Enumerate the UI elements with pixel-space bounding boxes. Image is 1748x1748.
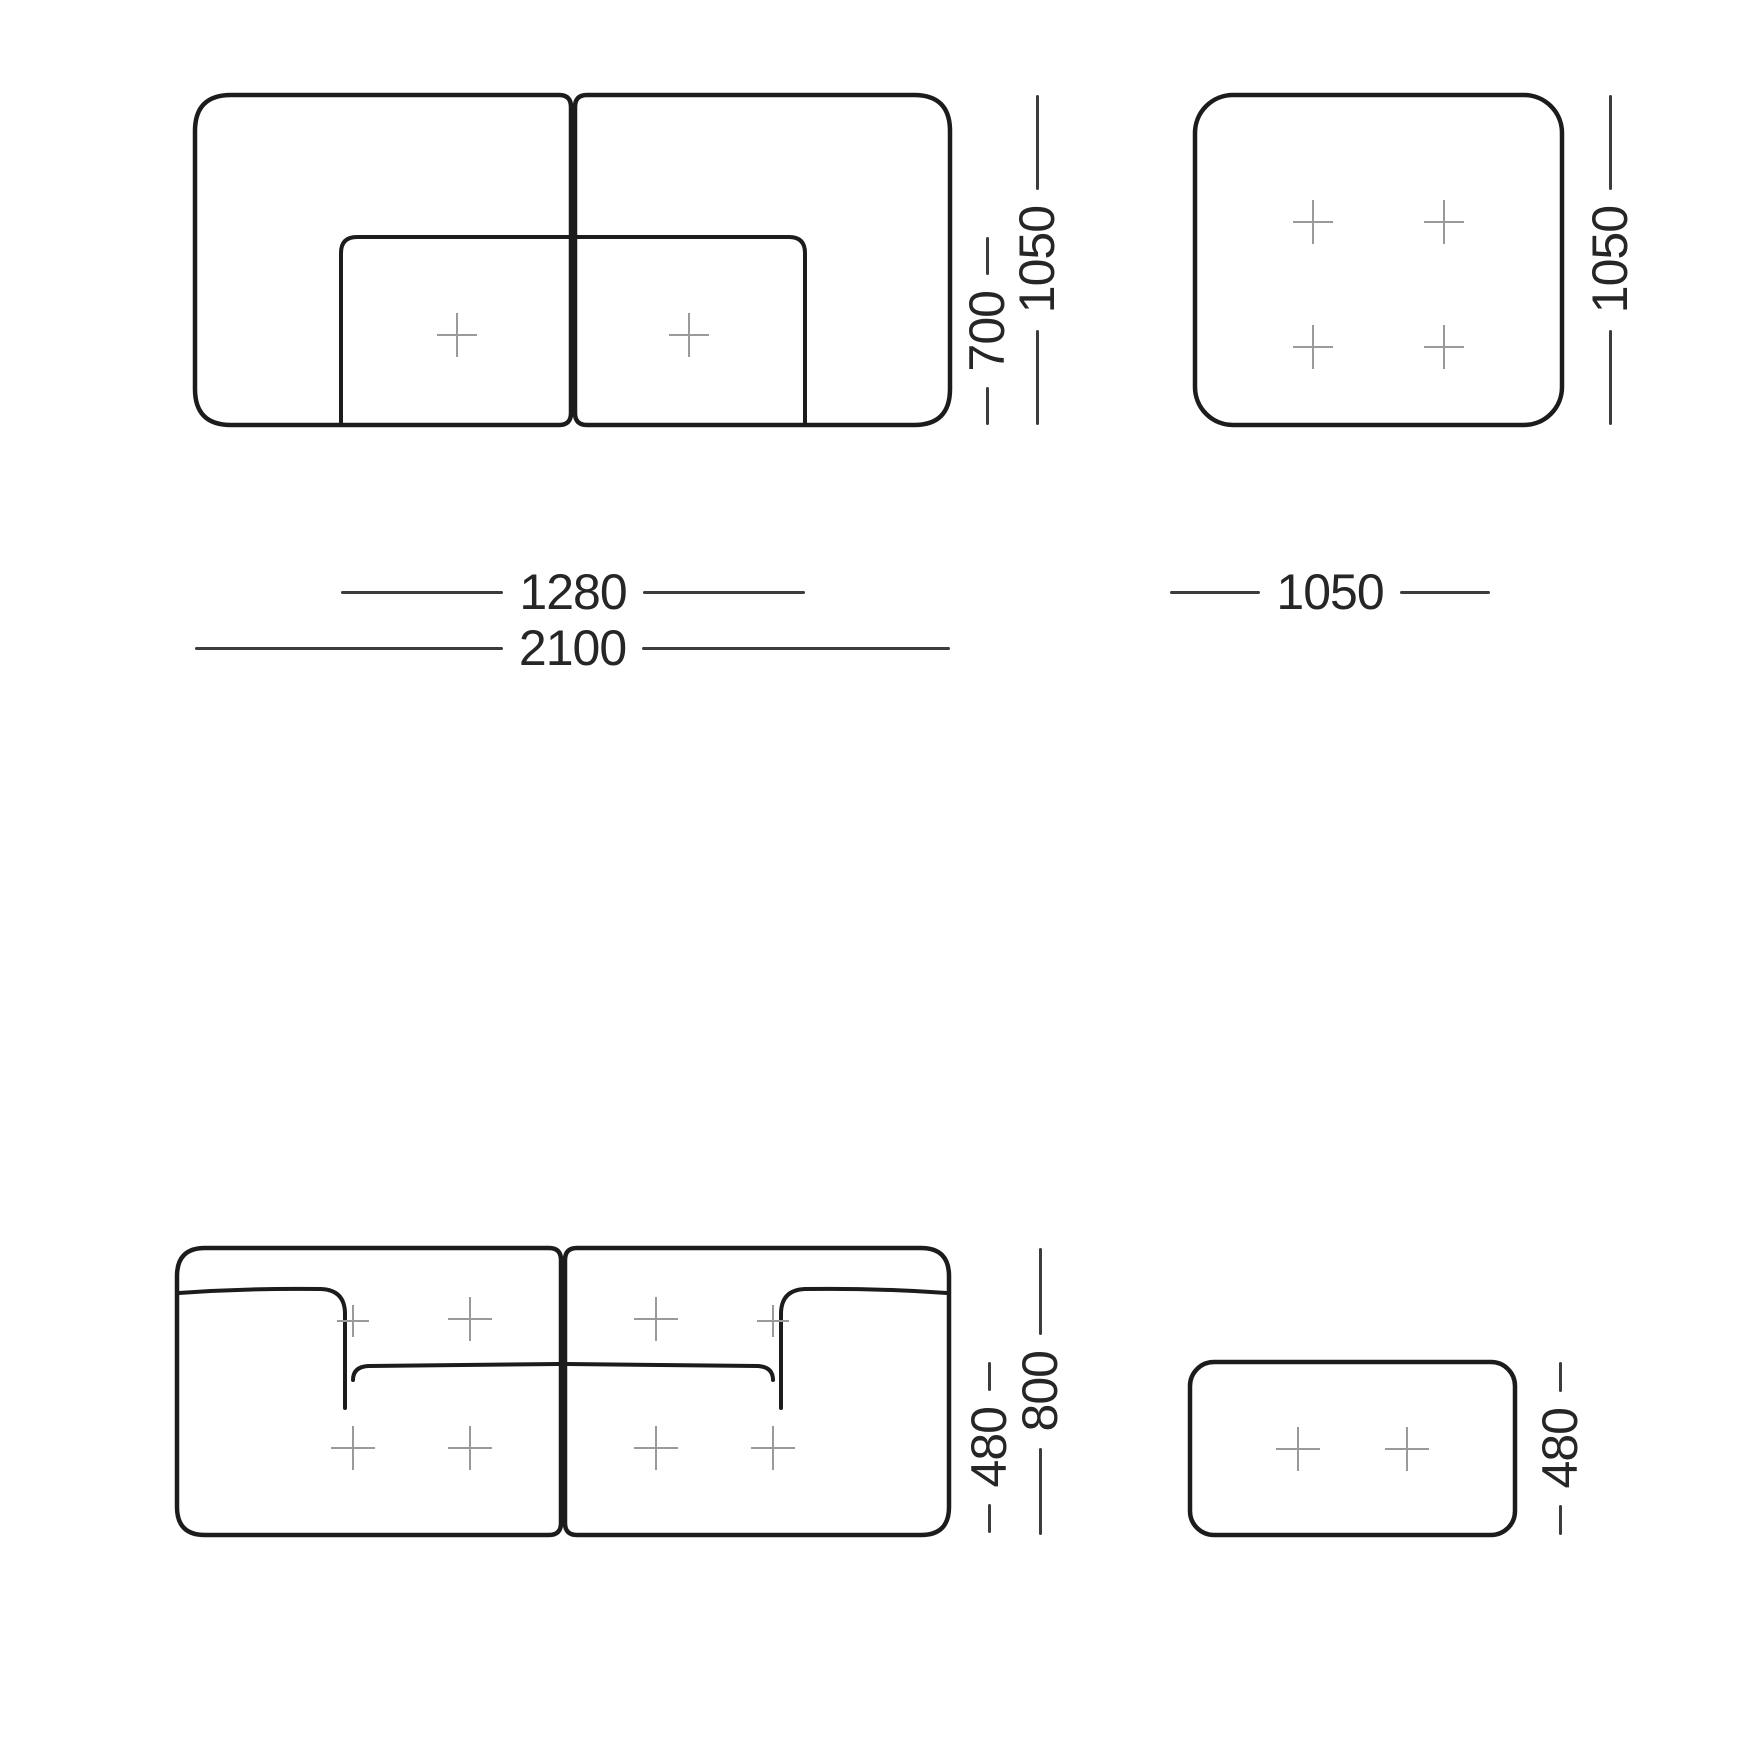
sofa-front-right-back-cross-2 bbox=[757, 1305, 789, 1337]
ottoman-plan-tuft-cross-4 bbox=[1424, 325, 1464, 369]
sofa-front-left-back-cross-2 bbox=[448, 1297, 492, 1341]
dim-line bbox=[1036, 330, 1039, 425]
sofa-plan-right-seat-seam bbox=[577, 237, 805, 423]
ottoman-front-tuft-cross-1 bbox=[1276, 1427, 1320, 1471]
sofa-front-right-back-cross-1 bbox=[634, 1297, 678, 1341]
dim-line bbox=[1039, 1248, 1042, 1335]
sofa-front-right-seat-seam bbox=[567, 1364, 773, 1380]
dim-ottoman-width: 1050 bbox=[1170, 568, 1490, 616]
dim-line bbox=[1170, 591, 1260, 594]
ottoman-plan-tuft-cross-3 bbox=[1293, 325, 1333, 369]
dim-line bbox=[1559, 1362, 1562, 1392]
dim-label-ottoman-width: 1050 bbox=[1276, 567, 1383, 617]
dim-line bbox=[1039, 1448, 1042, 1535]
dim-sofa-total-width: 2100 bbox=[195, 624, 950, 672]
sofa-plan-right-tuft-cross bbox=[669, 313, 709, 357]
dim-sofa-seat-height: 480 bbox=[963, 1362, 1015, 1533]
dim-line bbox=[988, 1504, 991, 1533]
dim-line bbox=[1609, 330, 1612, 425]
sofa-plan-left-tuft-cross bbox=[437, 313, 477, 357]
dim-label-sofa-total-height: 800 bbox=[1015, 1351, 1065, 1431]
ottoman-front-outline bbox=[1190, 1362, 1515, 1535]
sofa-front-left-seat-seam bbox=[353, 1364, 559, 1380]
dim-line bbox=[341, 591, 503, 594]
sofa-front-left-arm-seam bbox=[179, 1289, 345, 1408]
dim-ottoman-height: 480 bbox=[1534, 1362, 1586, 1535]
dim-label-sofa-seat-height: 480 bbox=[964, 1407, 1014, 1487]
dim-line bbox=[988, 1362, 991, 1391]
dim-sofa-seat-width: 1280 bbox=[341, 568, 805, 616]
sofa-front-left-seat-cross-1 bbox=[331, 1426, 375, 1470]
dim-label-sofa-seat-depth: 700 bbox=[962, 291, 1012, 371]
dim-line bbox=[643, 591, 805, 594]
dim-line bbox=[1609, 95, 1612, 190]
sofa-front-left-seat-cross-2 bbox=[448, 1426, 492, 1470]
line-drawing-canvas bbox=[0, 0, 1748, 1748]
dim-label-sofa-total-depth: 1050 bbox=[1012, 206, 1062, 313]
dim-line bbox=[195, 647, 503, 650]
sofa-front-right-seat-cross-1 bbox=[634, 1426, 678, 1470]
sofa-front-right-seat-cross-2 bbox=[751, 1426, 795, 1470]
dim-sofa-seat-depth: 700 bbox=[961, 237, 1013, 425]
dim-line bbox=[642, 647, 950, 650]
dim-line bbox=[1400, 591, 1490, 594]
dim-sofa-total-depth: 1050 bbox=[1011, 95, 1063, 425]
dim-line bbox=[986, 237, 989, 275]
dim-line bbox=[1559, 1505, 1562, 1535]
dim-line bbox=[986, 387, 989, 425]
sofa-front-right-arm-seam bbox=[781, 1289, 947, 1408]
dim-label-ottoman-height: 480 bbox=[1535, 1408, 1585, 1488]
ottoman-plan-outline bbox=[1195, 95, 1562, 425]
dim-line bbox=[1036, 95, 1039, 190]
dim-ottoman-depth: 1050 bbox=[1584, 95, 1636, 425]
sofa-plan-left-module-outline bbox=[195, 95, 571, 425]
sofa-plan-right-module-outline bbox=[575, 95, 950, 425]
dim-label-sofa-total-width: 2100 bbox=[519, 623, 626, 673]
sofa-plan-left-seat-seam bbox=[341, 237, 569, 423]
dim-label-ottoman-depth: 1050 bbox=[1585, 206, 1635, 313]
furniture-dimension-diagram: 1280 2100 1050 700 1050 1050 480 800 bbox=[0, 0, 1748, 1748]
ottoman-front-tuft-cross-2 bbox=[1385, 1427, 1429, 1471]
ottoman-plan-tuft-cross-2 bbox=[1424, 200, 1464, 244]
ottoman-plan-tuft-cross-1 bbox=[1293, 200, 1333, 244]
sofa-front-left-back-cross-1 bbox=[337, 1305, 369, 1337]
dim-label-sofa-seat-width: 1280 bbox=[519, 567, 626, 617]
dim-sofa-total-height: 800 bbox=[1014, 1248, 1066, 1535]
